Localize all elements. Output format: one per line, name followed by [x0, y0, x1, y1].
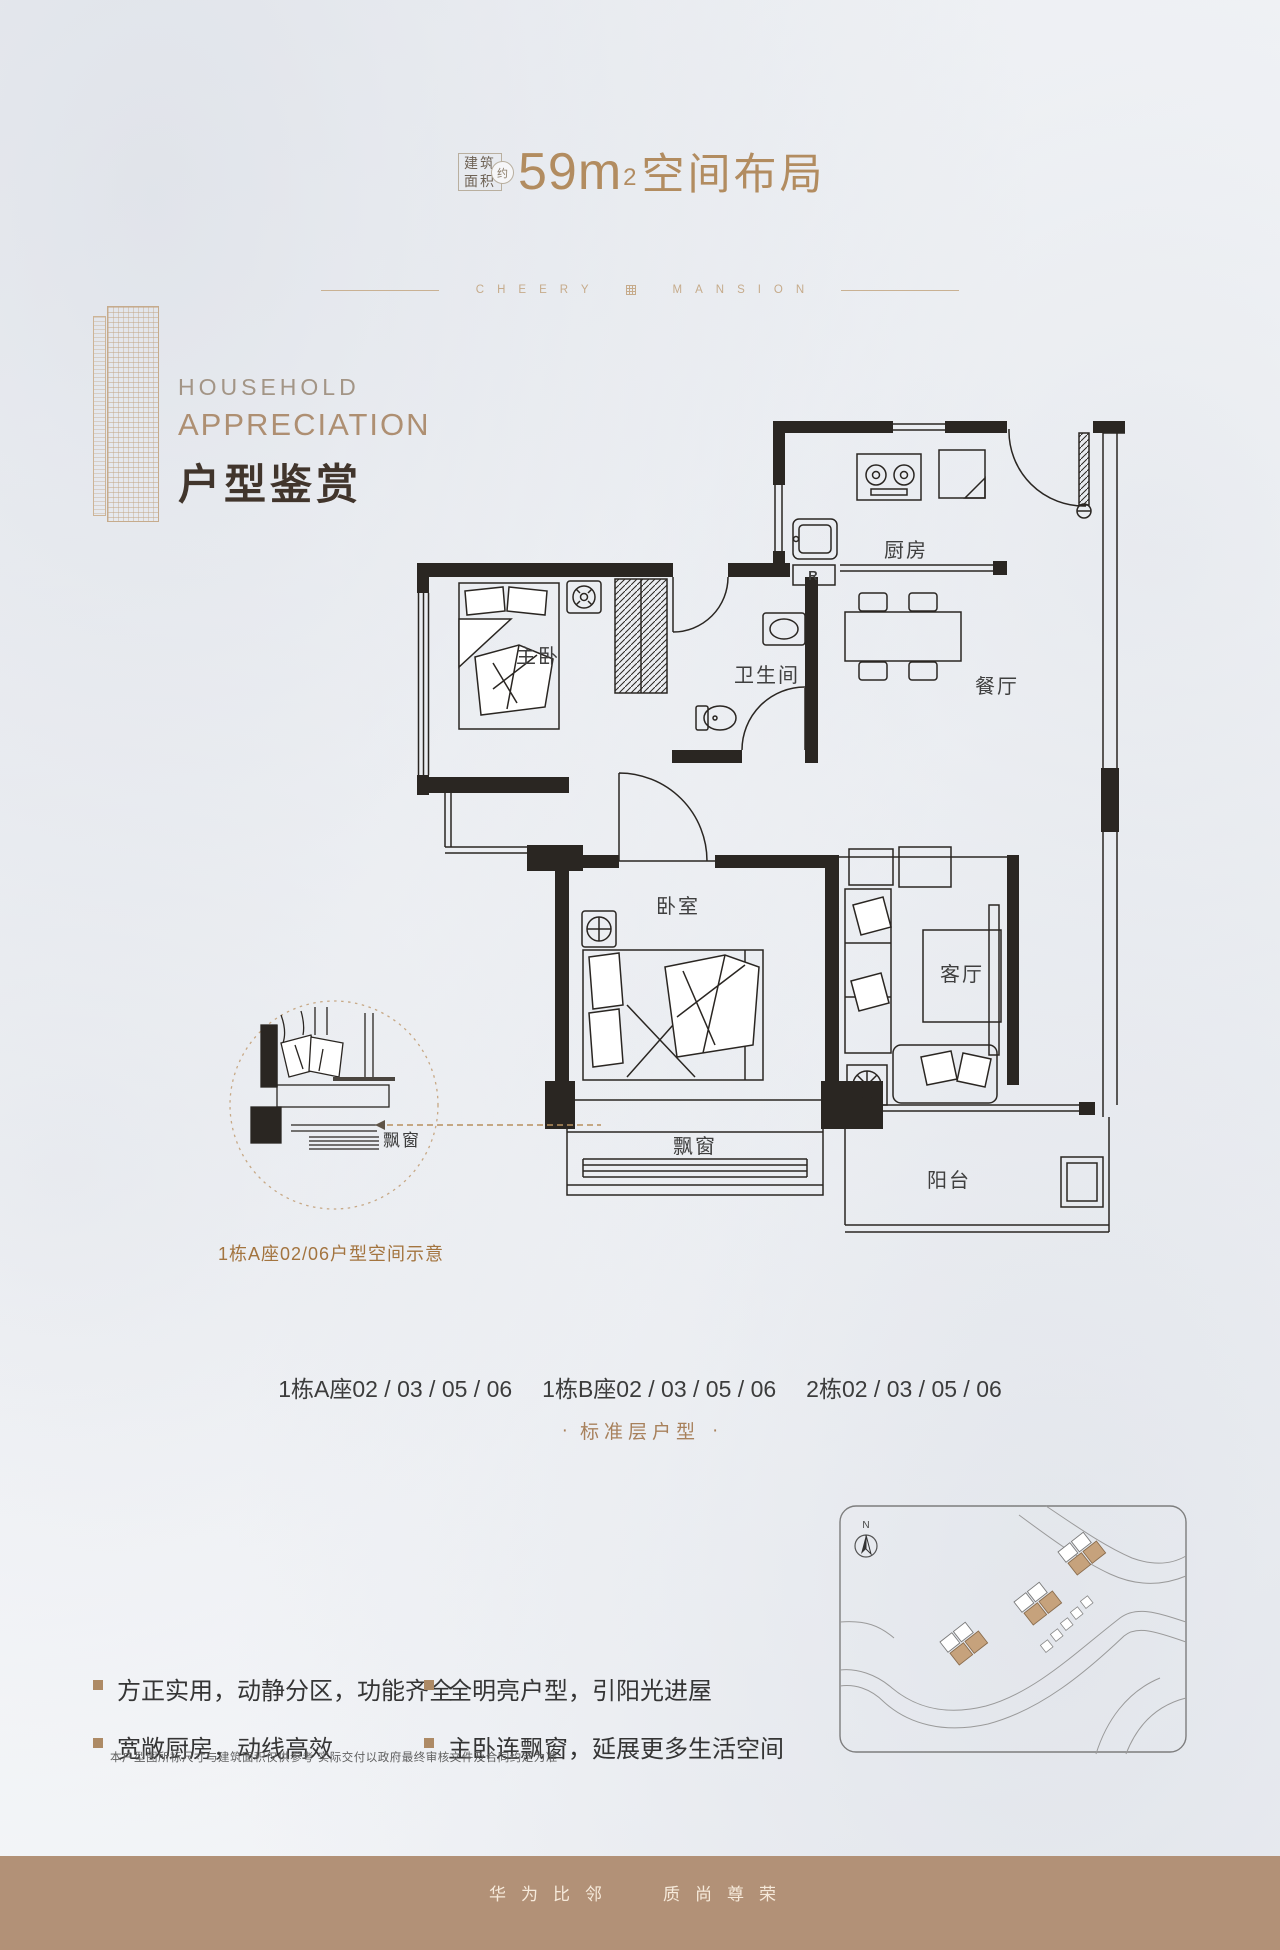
divider-line-right	[841, 290, 959, 291]
section-title-en-bottom: APPRECIATION	[178, 407, 431, 443]
site-building-cluster-2	[1014, 1579, 1062, 1625]
area-number: 59m	[518, 142, 622, 202]
site-roads	[840, 1506, 1186, 1754]
label-bathroom: 卫生间	[734, 664, 800, 687]
page-title: 59m 2 空间布局	[518, 140, 826, 202]
footer-slogan-right: 质尚尊荣	[663, 1880, 791, 1950]
unit-group-c: 2栋02 / 03 / 05 / 06	[806, 1370, 1002, 1404]
label-kitchen: 厨房	[884, 539, 928, 562]
disclaimer-text: 本户型图所标尺寸与建筑面积仅供参考 实际交付以政府最终审核文件及合同约定为准	[110, 1749, 558, 1765]
brand-building-icon	[626, 285, 636, 295]
detail-arrow-icon	[375, 1120, 385, 1130]
label-bay-window: 飘窗	[673, 1135, 717, 1158]
plan-caption: 1栋A座02/06户型空间示意	[218, 1240, 444, 1266]
bullet-icon	[424, 1738, 434, 1748]
feature-item-3: 全明亮户型，引阳光进屋	[424, 1671, 712, 1706]
compass-north-label: N	[862, 1520, 869, 1531]
tower-shaft	[107, 306, 159, 522]
water-heater-icon	[1061, 1157, 1103, 1207]
floor-type-row: · 标准层户型 ·	[0, 1417, 1280, 1444]
brand-word-left: CHEERY	[463, 284, 602, 296]
detail-bay-window-label: 飘窗	[383, 1131, 421, 1150]
label-dining: 餐厅	[975, 675, 1019, 698]
label-master-bedroom: 主卧	[516, 645, 560, 668]
armchair-icon	[899, 847, 951, 887]
section-title-en-top: HOUSEHOLD	[178, 374, 360, 401]
label-balcony: 阳台	[927, 1169, 971, 1192]
unit-group-a: 1栋A座02 / 03 / 05 / 06	[278, 1370, 512, 1404]
site-map: N	[836, 1502, 1190, 1758]
label-fridge-mark: R	[808, 568, 819, 583]
dining-set-icon	[845, 593, 961, 680]
compass-icon: N	[855, 1520, 877, 1557]
brand-divider: CHEERY MANSION	[0, 284, 1280, 296]
floor-type-dot-right: ·	[712, 1420, 718, 1442]
title-suffix: 空间布局	[642, 140, 826, 202]
area-exponent: 2	[623, 164, 636, 192]
feature-text: 全明亮户型，引阳光进屋	[448, 1671, 712, 1706]
plan-doors	[619, 429, 1091, 861]
unit-list: 1栋A座02 / 03 / 05 / 06 1栋B座02 / 03 / 05 /…	[0, 1370, 1280, 1404]
footer-bar: 华为比邻 质尚尊荣	[0, 1856, 1280, 1950]
section-title-cn: 户型鉴赏	[178, 451, 362, 512]
poster-page: 建筑 面积 约 59m 2 空间布局 CHEERY MANSION HOUSEH…	[0, 0, 1280, 1950]
tower-illustration	[93, 306, 159, 522]
side-table-icon	[849, 849, 893, 885]
feature-item-1: 方正实用，动静分区，功能齐全	[93, 1671, 453, 1706]
unit-group-b: 1栋B座02 / 03 / 05 / 06	[542, 1370, 776, 1404]
site-building-cluster-1	[940, 1619, 988, 1665]
brand-word-right: MANSION	[660, 284, 818, 296]
bullet-icon	[424, 1680, 434, 1690]
divider-line-left	[321, 290, 439, 291]
floor-type-label: 标准层户型	[580, 1417, 700, 1444]
toilet-icon	[704, 706, 736, 730]
tower-wing	[93, 316, 106, 516]
approx-circle-badge: 约	[491, 161, 514, 184]
detail-sketch	[251, 1007, 395, 1149]
floor-type-dot-left: ·	[562, 1420, 568, 1442]
fridge-icon	[939, 450, 985, 498]
label-living: 客厅	[940, 963, 984, 986]
footer-slogan-left: 华为比邻	[489, 1880, 617, 1950]
bullet-icon	[93, 1738, 103, 1748]
feature-text: 方正实用，动静分区，功能齐全	[117, 1671, 453, 1706]
wardrobe-washer	[567, 579, 667, 693]
label-bedroom: 卧室	[656, 895, 700, 918]
bullet-icon	[93, 1680, 103, 1690]
tv-cabinet-icon	[989, 905, 999, 1055]
